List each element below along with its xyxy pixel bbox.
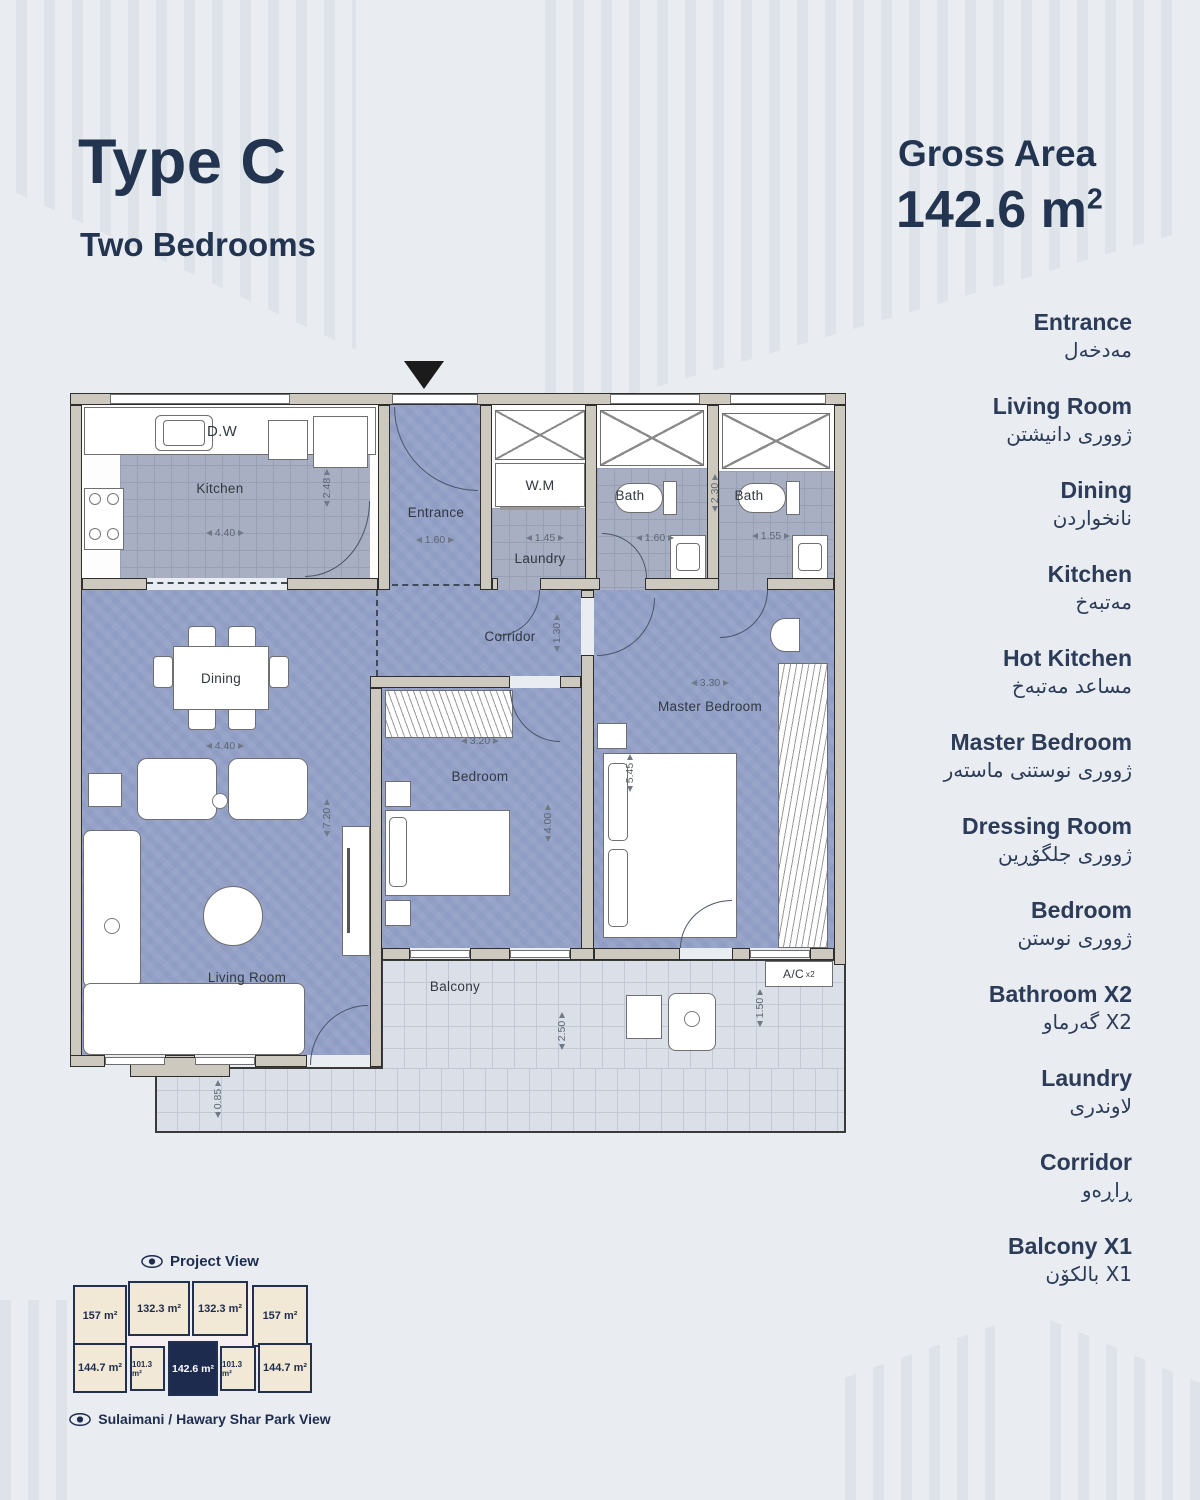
open-passage	[392, 584, 480, 586]
unit-101-right: 101.3 m²	[220, 1346, 256, 1391]
dim-bath2-width: 1.55	[736, 528, 806, 544]
dining-chair	[269, 656, 289, 688]
window	[750, 950, 810, 958]
dim-balcony-height: 2.50	[554, 1001, 570, 1061]
page-title: Type C	[78, 126, 286, 198]
page-subtitle: Two Bedrooms	[80, 226, 316, 264]
sofa-vertical	[83, 830, 141, 988]
dim-bedroom-width: 3.20	[442, 733, 518, 749]
legend-item-master-bedroom: Master Bedroomژووری نوستنی ماستەر	[944, 730, 1132, 782]
dim-kitchen-width: 4.40	[185, 525, 265, 541]
dim-master-height: 5.45	[622, 743, 638, 803]
wall	[70, 405, 82, 1067]
wall	[382, 948, 410, 960]
coffee-table-round	[203, 886, 263, 946]
window	[730, 394, 826, 404]
label-ac: A/C	[783, 967, 804, 981]
dim-entrance-width: 1.60	[400, 532, 470, 548]
label-dining: Dining	[201, 671, 241, 686]
ac-unit: A/C x2	[765, 961, 833, 987]
window	[410, 950, 470, 958]
unit-144-right: 144.7 m²	[258, 1343, 312, 1393]
shower-bath2	[722, 413, 830, 469]
park-view-label: Sulaimani / Hawary Shar Park View	[98, 1411, 330, 1427]
wall	[370, 676, 510, 688]
legend-item-living-room: Living Roomژووری دانیشتن	[944, 394, 1132, 446]
tv-screen	[347, 848, 350, 933]
unit-101-left: 101.3 m²	[130, 1346, 165, 1391]
bedroom-wardrobe	[385, 690, 513, 738]
wall	[287, 578, 378, 590]
background-stripes	[845, 1325, 995, 1500]
shower-bath1	[600, 410, 704, 466]
label-living-room: Living Room	[185, 970, 309, 985]
background-stripes	[1050, 1320, 1200, 1500]
page: Type C Two Bedrooms Gross Area 142.6 m2 …	[0, 0, 1200, 1500]
label-bath1: Bath	[598, 488, 662, 503]
dim-kitchen-height: 2.48	[319, 458, 335, 518]
park-view-footer: Sulaimani / Hawary Shar Park View	[40, 1411, 360, 1427]
wall	[594, 948, 680, 960]
shaft	[495, 410, 585, 460]
dim-bedroom-height: 4.00	[540, 793, 556, 853]
legend-item-dining: Diningنانخواردن	[944, 478, 1132, 530]
unit-157-left: 157 m²	[73, 1285, 127, 1347]
wall	[70, 1055, 105, 1067]
entry-arrow-icon	[404, 361, 444, 389]
window	[392, 394, 478, 404]
dim-bath1-width: 1.60	[620, 530, 690, 546]
armchair	[228, 758, 308, 820]
dining-table: Dining	[173, 646, 269, 710]
stove-burner	[89, 493, 101, 505]
dim-corridor-height: 1.30	[549, 603, 565, 663]
label-corridor: Corridor	[460, 629, 560, 644]
wall	[581, 655, 594, 960]
toilet-tank-bath1	[663, 481, 677, 515]
washer-line	[500, 507, 580, 510]
label-bedroom: Bedroom	[435, 769, 525, 784]
window	[110, 394, 290, 404]
dim-dining-width: 4.40	[185, 738, 265, 754]
wall	[540, 578, 600, 590]
unit-144-left: 144.7 m²	[73, 1343, 127, 1393]
dim-master-width: 3.30	[670, 675, 750, 691]
project-view-label: Project View	[170, 1253, 259, 1270]
legend-item-corridor: Corridorڕاڕەو	[944, 1150, 1132, 1202]
gross-area-value: 142.6 m2	[896, 180, 1103, 240]
label-wm: W.M	[526, 477, 555, 493]
sofa-horizontal	[83, 983, 305, 1055]
dim-laundry-width: 1.45	[510, 530, 580, 546]
master-chair	[770, 618, 800, 652]
armchair	[137, 758, 217, 820]
wall	[255, 1055, 307, 1067]
person-figure	[212, 793, 228, 809]
side-table	[88, 773, 122, 807]
bedroom-pillow	[389, 817, 407, 887]
legend-item-bathroom: Bathroom X2X2 گەرماو	[944, 982, 1132, 1034]
person-figure	[104, 918, 120, 934]
nightstand	[385, 781, 411, 807]
window	[195, 1057, 255, 1065]
gross-area-label: Gross Area	[898, 133, 1096, 175]
dim-living-height: 7.20	[319, 788, 335, 848]
wall	[732, 948, 750, 960]
wall	[810, 948, 834, 960]
window	[610, 394, 700, 404]
wall	[581, 590, 594, 598]
label-ac-mult: x2	[806, 970, 815, 979]
unit-132-left: 132.3 m²	[128, 1281, 190, 1336]
wall	[82, 578, 147, 590]
legend-item-laundry: Laundryلاوندری	[944, 1066, 1132, 1118]
room-legend: Entranceمەدخەل Living Roomژووری دانیشتن …	[944, 310, 1132, 1286]
label-bath2: Bath	[720, 488, 778, 503]
eye-icon	[69, 1413, 91, 1426]
label-laundry: Laundry	[490, 551, 590, 566]
label-entrance: Entrance	[386, 505, 486, 520]
wall	[470, 948, 510, 960]
unit-157-right: 157 m²	[252, 1285, 308, 1347]
stove-burner	[107, 493, 119, 505]
unit-132-right: 132.3 m²	[192, 1281, 248, 1336]
wall	[645, 578, 719, 590]
label-dw: D.W	[192, 423, 252, 440]
dim-bath2-height: 2.30	[707, 463, 723, 523]
wall	[570, 948, 594, 960]
wall	[767, 578, 834, 590]
project-view: Project View 157 m² 132.3 m² 132.3 m² 15…	[60, 1253, 340, 1443]
eye-icon	[141, 1255, 163, 1268]
sink-basin-bath1	[676, 543, 700, 571]
legend-item-kitchen: Kitchenمەتبەخ	[944, 562, 1132, 614]
dim-balcony-side-height: 1.50	[752, 978, 768, 1038]
kitchen-cabinet	[268, 420, 308, 460]
label-kitchen: Kitchen	[160, 481, 280, 496]
stove-burner	[107, 528, 119, 540]
unit-142-highlighted: 142.6 m²	[168, 1341, 218, 1396]
legend-item-dressing-room: Dressing Roomژووری جلگۆڕین	[944, 814, 1132, 866]
label-balcony: Balcony	[400, 979, 510, 994]
legend-item-balcony: Balcony X1X1 بالکۆن	[944, 1234, 1132, 1286]
legend-item-hot-kitchen: Hot Kitchenمساعد مەتبەخ	[944, 646, 1132, 698]
wall	[560, 676, 581, 688]
project-view-header: Project View	[60, 1253, 340, 1270]
dim-balcony-bottom-height: 0.85	[210, 1069, 226, 1129]
wall	[492, 578, 498, 590]
toilet-tank-bath2	[786, 481, 800, 515]
master-pillow	[608, 849, 628, 927]
label-master-bedroom: Master Bedroom	[615, 699, 805, 714]
person-figure	[684, 1011, 700, 1027]
window	[105, 1057, 165, 1065]
wall	[370, 688, 382, 1067]
open-passage	[376, 590, 378, 676]
balcony-table	[626, 995, 662, 1039]
floor-plan: W.M Dining	[70, 393, 846, 1141]
wall	[378, 405, 390, 590]
sink-basin-bath2	[798, 543, 822, 571]
washing-machine: W.M	[495, 463, 585, 507]
window	[510, 950, 570, 958]
legend-item-bedroom: Bedroomژووری نوستن	[944, 898, 1132, 950]
open-passage	[147, 582, 287, 584]
wall	[834, 405, 846, 965]
dining-chair	[153, 656, 173, 688]
nightstand	[385, 900, 411, 926]
legend-item-entrance: Entranceمەدخەل	[944, 310, 1132, 362]
stove-burner	[89, 528, 101, 540]
